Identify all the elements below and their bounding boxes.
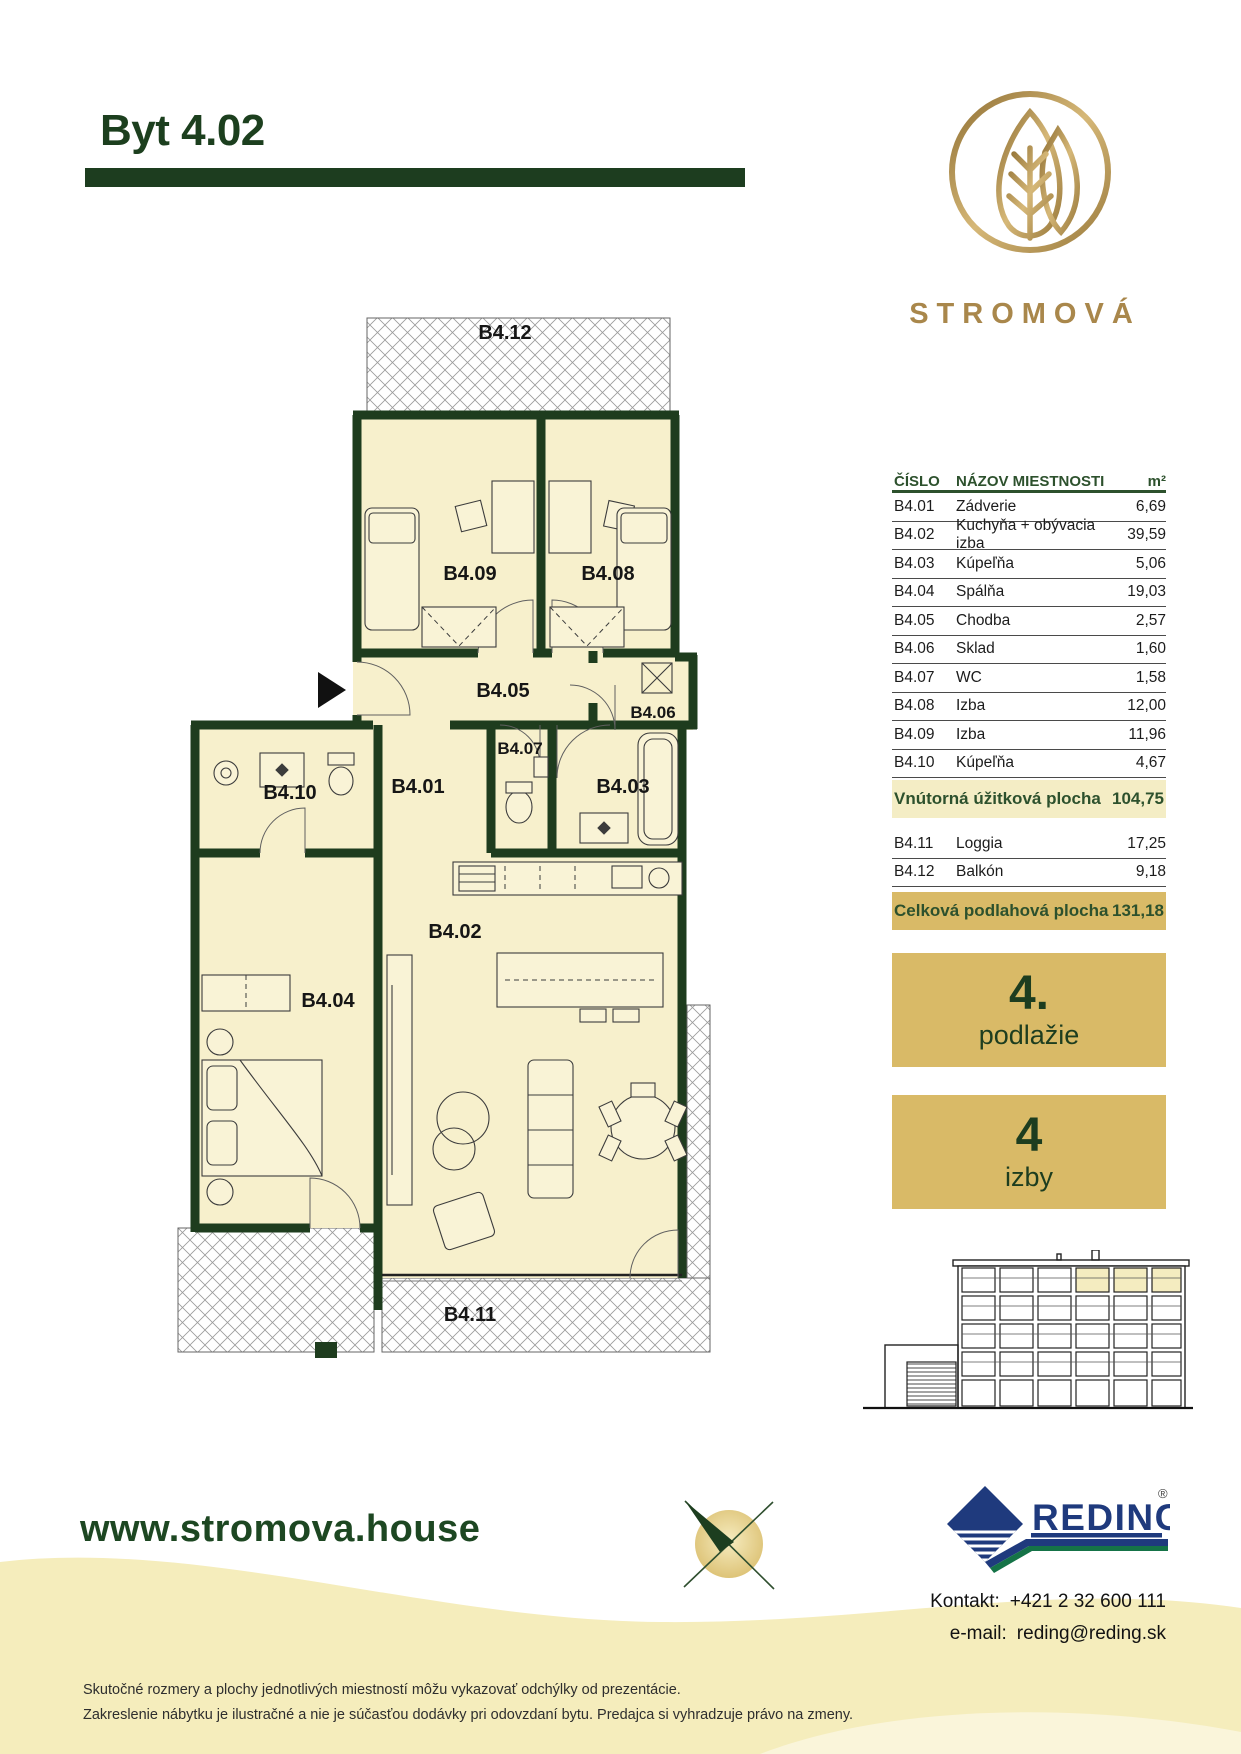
header-number: ČÍSLO xyxy=(892,473,956,490)
brochure-page: Byt 4.02 STROMOVÁ xyxy=(0,0,1241,1754)
area-table-extra-rows: B4.11Loggia17,25B4.12Balkón9,18 xyxy=(892,830,1166,887)
table-row: B4.05Chodba2,57 xyxy=(892,607,1166,636)
room-label-b407: B4.07 xyxy=(497,739,542,758)
email-label: e-mail: xyxy=(950,1618,1007,1650)
floor-badge-value: 4. xyxy=(1009,969,1049,1019)
contact-phone: +421 2 32 600 111 xyxy=(1010,1591,1166,1612)
table-row: B4.12Balkón9,18 xyxy=(892,859,1166,888)
website-url: www.stromova.house xyxy=(80,1508,480,1551)
disclaimer-line-1: Skutočné rozmery a plochy jednotlivých m… xyxy=(83,1678,853,1703)
area-table-rows: B4.01Zádverie6,69B4.02Kuchyňa + obývacia… xyxy=(892,493,1166,778)
table-row: B4.08Izba12,00 xyxy=(892,693,1166,722)
subtotal-row: Vnútorná úžitková plocha 104,75 xyxy=(892,780,1166,818)
floor-badge: 4. podlažie xyxy=(892,953,1166,1067)
header-name: NÁZOV MIESTNOSTI xyxy=(956,473,1108,490)
floor-badge-label: podlažie xyxy=(979,1020,1080,1051)
room-label-b409: B4.09 xyxy=(443,563,496,585)
table-row: B4.10Kúpeľňa4,67 xyxy=(892,750,1166,779)
entrance-arrow-icon xyxy=(318,672,346,708)
table-row: B4.02Kuchyňa + obývacia izba39,59 xyxy=(892,522,1166,551)
subtotal-label: Vnútorná úžitková plocha xyxy=(894,789,1112,809)
room-label-b410: B4.10 xyxy=(263,782,316,804)
area-table: ČÍSLO NÁZOV MIESTNOSTI m² B4.01Zádverie6… xyxy=(892,460,1166,930)
total-label: Celková podlahová plocha xyxy=(894,901,1112,921)
room-label-b403: B4.03 xyxy=(596,776,649,798)
room-label-b412: B4.12 xyxy=(478,322,531,344)
contact-label: Kontakt: xyxy=(930,1586,1000,1618)
rooms-badge: 4 izby xyxy=(892,1095,1166,1209)
subtotal-value: 104,75 xyxy=(1112,789,1164,809)
email-value: reding@reding.sk xyxy=(1017,1623,1166,1644)
disclaimer-text: Skutočné rozmery a plochy jednotlivých m… xyxy=(83,1678,853,1728)
reding-wordmark: REDING xyxy=(1032,1497,1170,1538)
table-row: B4.03Kúpeľňa5,06 xyxy=(892,550,1166,579)
room-label-b411: B4.11 xyxy=(444,1304,496,1326)
total-row: Celková podlahová plocha 131,18 xyxy=(892,892,1166,930)
loggia-area-bottom xyxy=(382,1278,710,1352)
total-value: 131,18 xyxy=(1112,901,1164,921)
floor-plan: B4.12 B4.09 B4.08 B4.05 B4.06 B4.10 B4.0… xyxy=(160,265,720,1365)
area-table-header: ČÍSLO NÁZOV MIESTNOSTI m² xyxy=(892,460,1166,493)
room-label-b402: B4.02 xyxy=(428,921,481,943)
room-label-b404: B4.04 xyxy=(301,990,355,1012)
rooms-badge-value: 4 xyxy=(1016,1111,1043,1161)
room-label-b408: B4.08 xyxy=(581,563,634,585)
header-unit: m² xyxy=(1108,473,1166,490)
contact-block: Kontakt:+421 2 32 600 111 e-mail:reding@… xyxy=(830,1586,1166,1650)
stromova-logo-icon xyxy=(945,86,1115,258)
registered-mark: ® xyxy=(1158,1486,1168,1501)
contact-email-line: e-mail:reding@reding.sk xyxy=(830,1618,1166,1650)
brand-name: STROMOVÁ xyxy=(895,298,1155,331)
title-underline-bar xyxy=(85,168,745,187)
table-row: B4.06Sklad1,60 xyxy=(892,636,1166,665)
reding-logo: REDING ® xyxy=(930,1482,1170,1578)
compass-icon xyxy=(670,1490,788,1608)
building-elevation xyxy=(845,1250,1195,1422)
contact-phone-line: Kontakt:+421 2 32 600 111 xyxy=(830,1586,1166,1618)
table-row: B4.07WC1,58 xyxy=(892,664,1166,693)
table-row: B4.09Izba11,96 xyxy=(892,721,1166,750)
room-label-b406: B4.06 xyxy=(630,703,675,722)
table-row: B4.04Spálňa19,03 xyxy=(892,579,1166,608)
room-label-b401: B4.01 xyxy=(391,776,444,798)
loggia-area-left xyxy=(178,1228,374,1352)
room-label-b405: B4.05 xyxy=(476,680,529,702)
table-row: B4.11Loggia17,25 xyxy=(892,830,1166,859)
page-title: Byt 4.02 xyxy=(100,106,265,156)
disclaimer-line-2: Zakreslenie nábytku je ilustračné a nie … xyxy=(83,1703,853,1728)
loggia-area-right xyxy=(687,1005,710,1278)
rooms-badge-label: izby xyxy=(1005,1162,1053,1193)
